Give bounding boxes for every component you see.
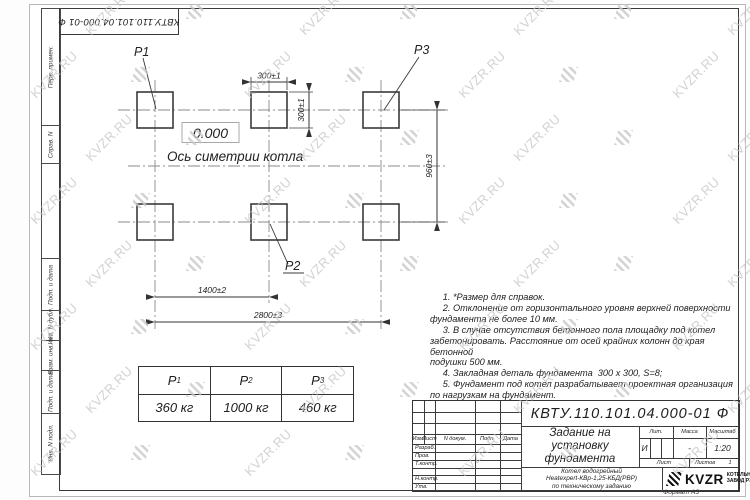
- tb-lit-value: И: [639, 438, 650, 458]
- tb-scale-header: Масштаб: [706, 426, 739, 438]
- p-symbol: P: [311, 373, 320, 388]
- tb-subject-line: Heatexpert-КВр-1,25-КБД(РВР): [546, 475, 637, 482]
- tb-row-nkontr: Н.контр.: [413, 475, 437, 483]
- load-value-p3: 460 кг: [281, 395, 353, 422]
- loads-table: P1 P2 P3 360 кг 1000 кг 460 кг: [138, 366, 354, 422]
- p-symbol: P: [239, 373, 248, 388]
- loads-table-value-row: 360 кг 1000 кг 460 кг: [139, 395, 353, 422]
- note-line: 3. В случае отсутствия бетонного пола пл…: [430, 325, 738, 336]
- p-symbol: P: [168, 373, 177, 388]
- loads-table-header-row: P1 P2 P3: [139, 367, 353, 395]
- kvzr-logo: KVZR КОТЕЛЬНЫЙ ЗАВОД РЭП: [662, 467, 743, 491]
- kvzr-logo-text: KVZR: [685, 472, 724, 487]
- format-label: Формат А3: [636, 489, 726, 496]
- tb-title: Задание на установку фундамента: [521, 426, 639, 467]
- tb-title-line: установку: [551, 440, 608, 453]
- tb-scale-value: 1:20: [706, 438, 739, 458]
- loads-header-p1: P1: [139, 367, 210, 394]
- load-value-p1: 360 кг: [139, 395, 210, 422]
- tb-sheet-label: Лист: [639, 458, 689, 467]
- title-block: Изм. Лист N докум. Подп. Дата Разраб. Пр…: [412, 400, 740, 492]
- tb-doc-number: КВТУ.110.101.04.000-01 Ф: [521, 401, 739, 426]
- tb-row-tkontr: Т.контр.: [413, 460, 437, 468]
- tb-subject-line: по техническому заданию: [552, 483, 631, 490]
- loads-header-p2: P2: [210, 367, 282, 394]
- note-line: забетонировать. Расстояние от осей крайн…: [430, 336, 738, 358]
- dim-overall: 2800±3: [253, 310, 283, 320]
- tb-subject: Котел водогрейный Heatexpert-КВр-1,25-КБ…: [521, 467, 662, 491]
- drawing-page: Перв. примен. Справ. N Подп. и дата Инв.…: [0, 0, 750, 500]
- label-p2: P2: [285, 259, 300, 273]
- tb-title-line: фундамента: [545, 453, 616, 466]
- loads-header-p3: P3: [281, 367, 353, 394]
- dim-pad-height: 300±1: [296, 98, 306, 122]
- note-line: фундамента не более 10 мм.: [430, 314, 738, 325]
- tb-mass-value: -: [673, 438, 706, 458]
- label-p3: P3: [414, 43, 429, 57]
- kvzr-logo-icon: [666, 472, 682, 486]
- tb-col-list: Лист: [424, 434, 435, 444]
- technical-notes: 1. *Размер для справок. 2. Отклонение от…: [430, 292, 738, 401]
- label-p1: P1: [134, 45, 149, 59]
- kvzr-company: КОТЕЛЬНЫЙ ЗАВОД РЭП: [727, 473, 750, 485]
- note-line: 2. Отклонение от горизонтального уровня …: [430, 303, 738, 314]
- tb-mass-header: Масса: [673, 426, 706, 438]
- note-line: 4. Закладная деталь фундамента 300 x 300…: [430, 368, 738, 379]
- tb-col-podp: Подп.: [475, 434, 500, 444]
- tb-row-prov: Пров.: [413, 452, 437, 460]
- p-subscript: 2: [248, 376, 252, 385]
- tb-sheets-label: Листов: [689, 458, 721, 467]
- tb-row-utv: Утв.: [413, 483, 437, 491]
- p-subscript: 1: [176, 376, 180, 385]
- tb-row-razrab: Разраб.: [413, 444, 437, 452]
- dim-pad-width: 300±1: [257, 71, 281, 81]
- note-line: подушки 500 мм.: [430, 357, 738, 368]
- tb-subject-line: Котел водогрейный: [561, 468, 622, 475]
- tb-title-line: Задание на: [549, 427, 610, 440]
- p-subscript: 3: [320, 376, 324, 385]
- tb-col-data: Дата: [500, 434, 521, 444]
- dim-row-spacing: 960±3: [424, 154, 434, 178]
- note-line: 5. Фундамент под котел разрабатывает про…: [430, 379, 738, 390]
- elevation-value: 0.000: [193, 125, 228, 141]
- dim-mid-spacing: 1400±2: [198, 285, 227, 295]
- tb-col-ndoc: N докум.: [435, 434, 475, 444]
- tb-lit-header: Лит.: [639, 426, 673, 438]
- kvzr-company-line: ЗАВОД РЭП: [727, 479, 750, 485]
- axis-of-symmetry-label: Ось симетрии котла: [167, 149, 304, 164]
- load-value-p2: 1000 кг: [210, 395, 282, 422]
- tb-sheets-value: 1: [721, 458, 739, 467]
- note-line: 1. *Размер для справок.: [430, 292, 738, 303]
